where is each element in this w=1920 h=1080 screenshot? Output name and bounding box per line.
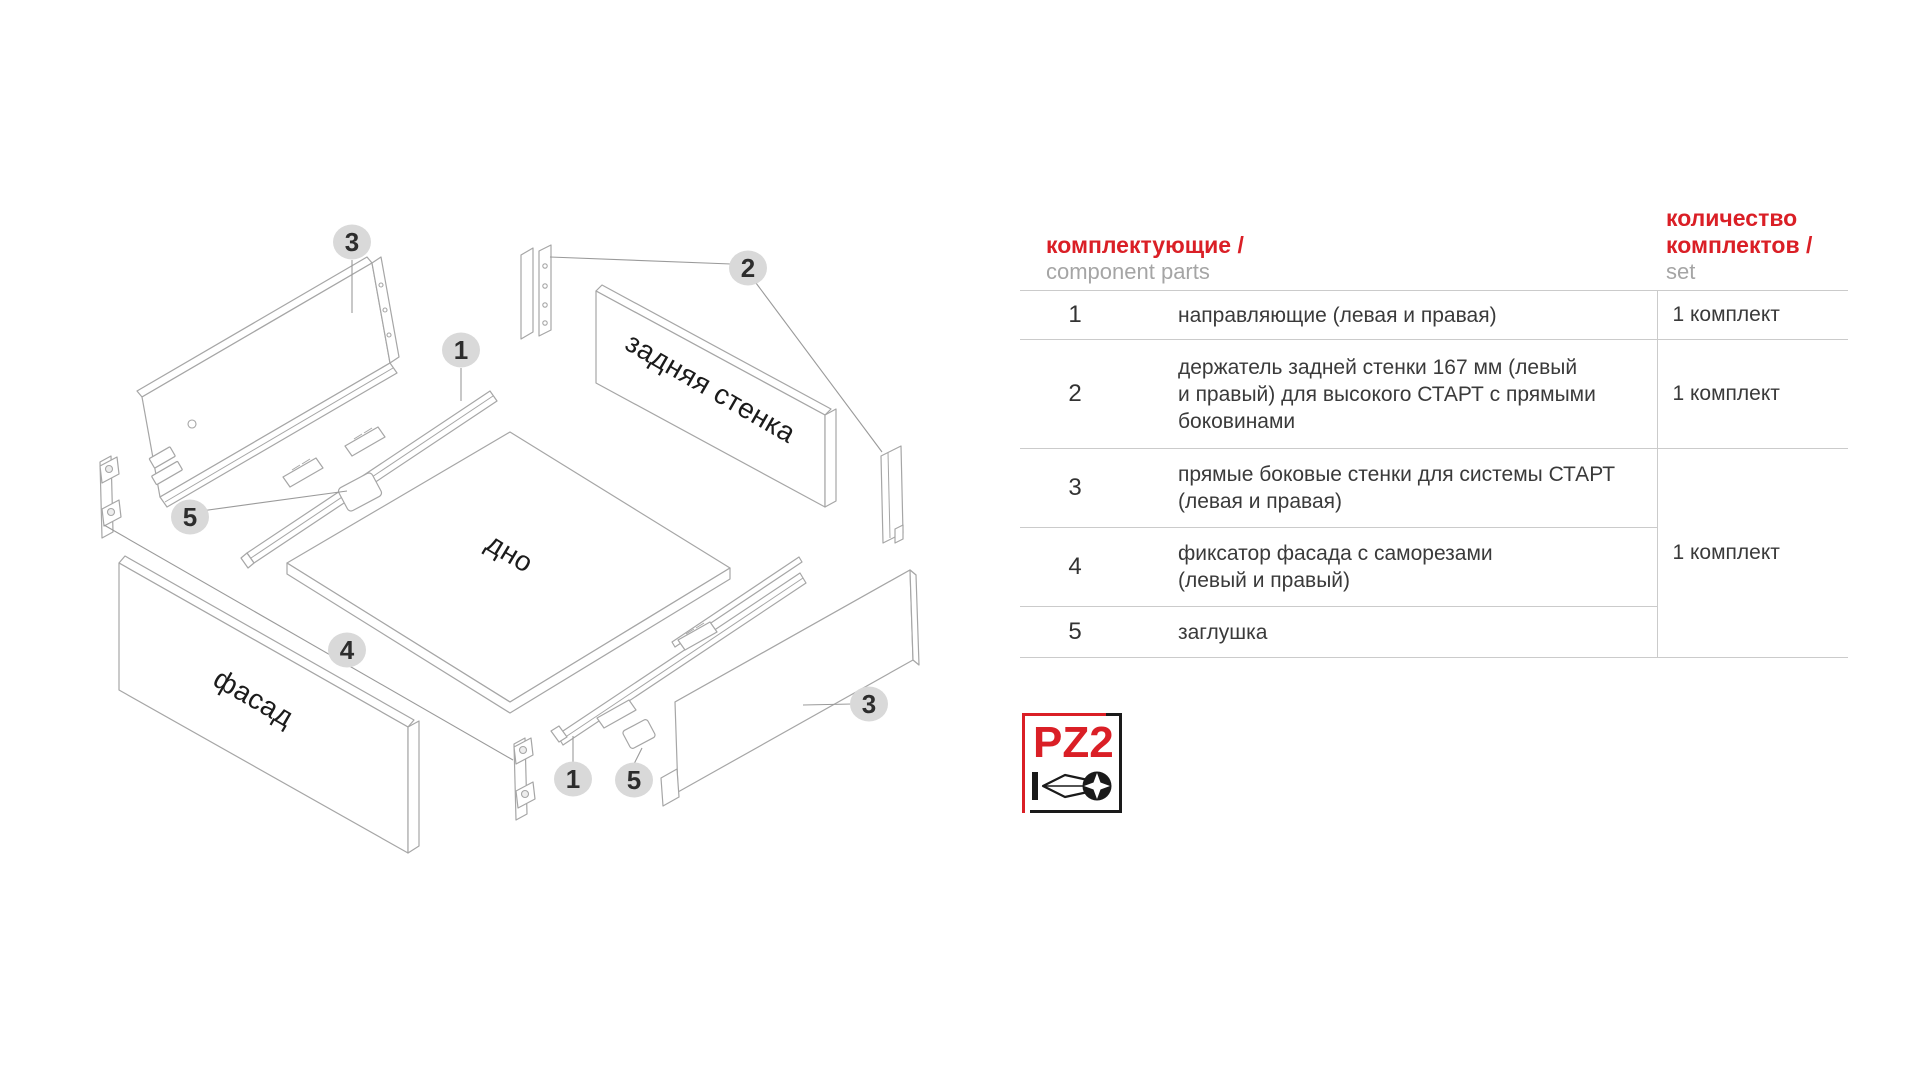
row-number: 2: [1020, 340, 1130, 449]
header-components-en: component parts: [1046, 259, 1244, 285]
desc-line: (левая и правая): [1178, 488, 1657, 515]
header-quantity-ru-1: количество: [1666, 205, 1812, 232]
merged-quantity: 1 комплект: [1657, 449, 1848, 658]
side-panel-left: [137, 257, 399, 507]
logo-border-right-black: [1119, 713, 1122, 813]
callout-5-left-num: 5: [183, 502, 197, 532]
desc-line: и правый) для высокого СТАРТ с прямыми: [1178, 381, 1657, 408]
header-quantity: количество комплектов / set: [1666, 205, 1812, 285]
desc-line: фиксатор фасада с саморезами: [1178, 540, 1657, 567]
callout-2-num: 2: [741, 253, 755, 283]
callout-3-top-num: 3: [345, 227, 359, 257]
row-quantity: 1 комплект: [1657, 340, 1848, 449]
callout-1-bottom: 1: [554, 762, 592, 797]
header-components-ru: комплектующие /: [1046, 232, 1244, 259]
parts-table-panel: комплектующие / component parts количест…: [1020, 160, 1848, 658]
row-number: 5: [1020, 607, 1130, 658]
facade-fixator-left: [100, 456, 121, 538]
callout-1-top-num: 1: [454, 335, 468, 365]
row-description: прямые боковые стенки для системы СТАРТ …: [1130, 449, 1657, 528]
callout-5-bottom-num: 5: [627, 765, 641, 795]
desc-line: (левый и правый): [1178, 567, 1657, 594]
callout-3-right-num: 3: [862, 689, 876, 719]
row-number: 3: [1020, 449, 1130, 528]
callout-1-top: 1: [442, 333, 480, 368]
back-wall-holder-left: [521, 245, 551, 339]
desc-line: направляющие (левая и правая): [1178, 302, 1657, 329]
row-description: фиксатор фасада с саморезами (левый и пр…: [1130, 528, 1657, 607]
table-row: 1 направляющие (левая и правая) 1 компле…: [1020, 291, 1848, 340]
exploded-drawer-diagram: задняя стенка дно фасад: [0, 0, 1000, 1080]
logo-border-top-red: [1022, 713, 1106, 716]
table-row: 3 прямые боковые стенки для системы СТАР…: [1020, 449, 1848, 528]
row-description: направляющие (левая и правая): [1130, 291, 1657, 340]
plug-lower: [622, 719, 656, 750]
desc-line: заглушка: [1178, 619, 1657, 646]
row-description: заглушка: [1130, 607, 1657, 658]
parts-table: 1 направляющие (левая и правая) 1 компле…: [1020, 290, 1848, 658]
row-quantity: 1 комплект: [1657, 291, 1848, 340]
row-number: 1: [1020, 291, 1130, 340]
callout-2: 2: [729, 251, 767, 286]
table-row: 2 держатель задней стенки 167 мм (левый …: [1020, 340, 1848, 449]
header-quantity-en: set: [1666, 259, 1812, 285]
row-number: 4: [1020, 528, 1130, 607]
screwdriver-bit-icon: [1031, 768, 1113, 804]
callout-3-right: 3: [850, 687, 888, 722]
desc-line: боковинами: [1178, 408, 1657, 435]
pz2-screw-logo: PZ2: [1022, 713, 1122, 813]
callout-4: 4: [328, 633, 366, 668]
row-description: держатель задней стенки 167 мм (левый и …: [1130, 340, 1657, 449]
callout-3-top: 3: [333, 225, 371, 260]
back-wall-panel: задняя стенка: [596, 285, 836, 507]
logo-border-bottom-black: [1030, 810, 1122, 813]
logo-border-left-red: [1022, 713, 1025, 813]
back-wall-holder-right: [881, 446, 903, 543]
header-quantity-ru-2: комплектов /: [1666, 232, 1812, 259]
page: задняя стенка дно фасад: [0, 0, 1920, 1080]
table-header: комплектующие / component parts количест…: [1020, 160, 1848, 290]
desc-line: держатель задней стенки 167 мм (левый: [1178, 354, 1657, 381]
callout-5-left: 5: [171, 500, 209, 535]
callout-1-bottom-num: 1: [566, 764, 580, 794]
facade-fixator-right: [514, 738, 535, 820]
desc-line: прямые боковые стенки для системы СТАРТ: [1178, 461, 1657, 488]
callout-5-bottom: 5: [615, 763, 653, 798]
side-panel-right: [661, 570, 919, 806]
pz2-label: PZ2: [1033, 718, 1114, 768]
header-components: комплектующие / component parts: [1046, 232, 1244, 285]
callout-4-num: 4: [340, 635, 355, 665]
